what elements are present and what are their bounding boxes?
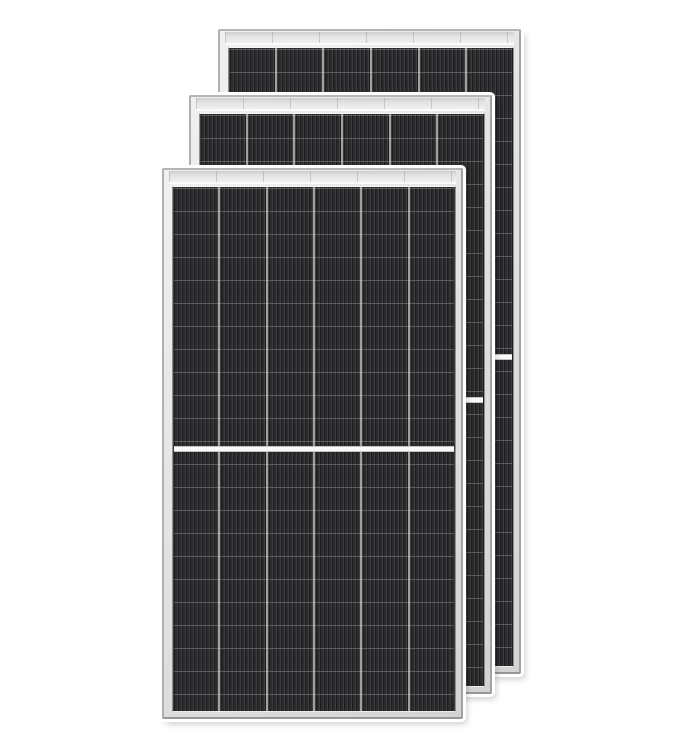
panel-frame-top-rail	[169, 171, 456, 184]
panel-cell-grid	[172, 186, 456, 712]
panel-frame-top-rail	[225, 32, 514, 45]
solar-panel-front	[162, 168, 463, 719]
panel-frame-top-rail	[196, 98, 485, 111]
half-cut-divider	[174, 446, 454, 452]
product-image-canvas	[0, 0, 684, 748]
